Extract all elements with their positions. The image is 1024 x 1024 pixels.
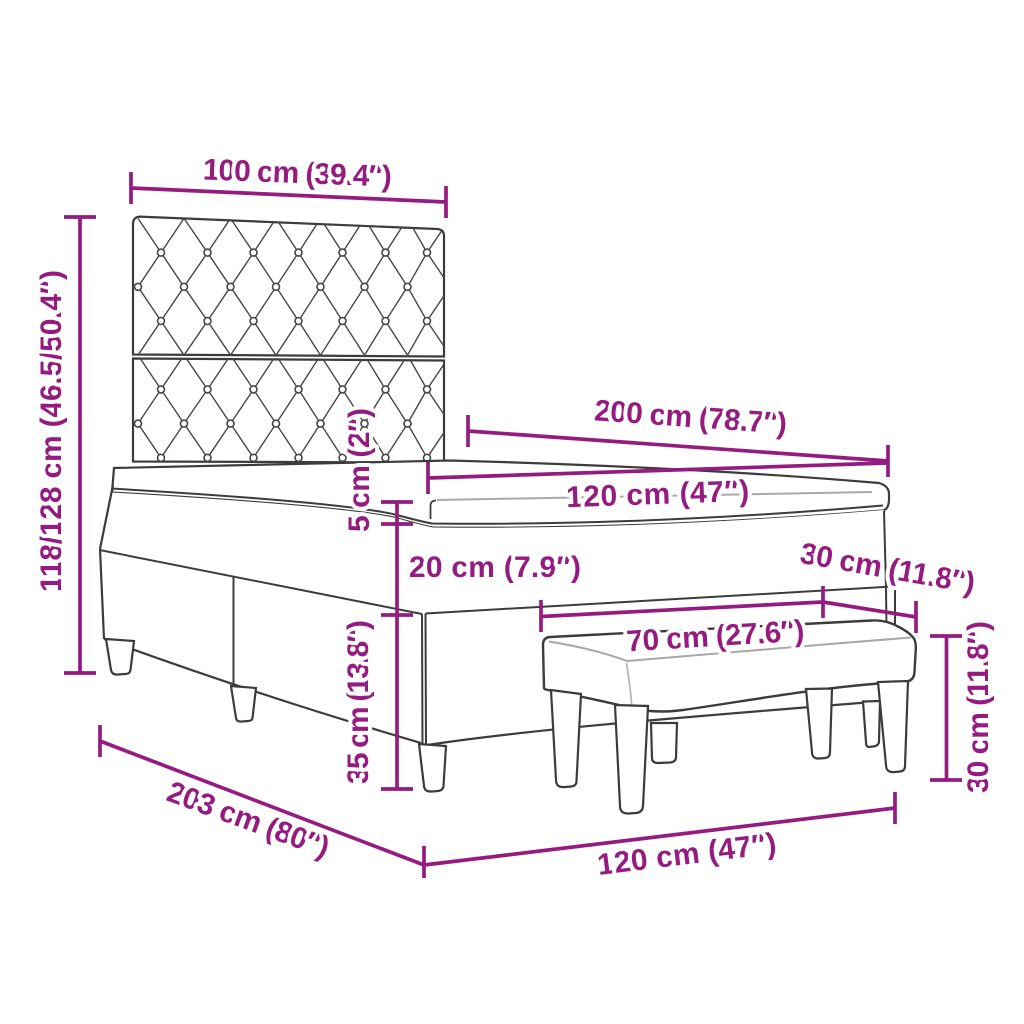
svg-text:118/128 cm (46.5/50.4″): 118/128 cm (46.5/50.4″) bbox=[35, 270, 68, 592]
svg-text:30 cm (11.8″): 30 cm (11.8″) bbox=[962, 621, 995, 793]
svg-text:20 cm (7.9″): 20 cm (7.9″) bbox=[409, 551, 581, 584]
svg-text:120 cm (47″): 120 cm (47″) bbox=[566, 475, 750, 514]
svg-text:5 cm (2″): 5 cm (2″) bbox=[343, 408, 376, 532]
svg-text:35 cm (13.8″): 35 cm (13.8″) bbox=[342, 620, 375, 784]
